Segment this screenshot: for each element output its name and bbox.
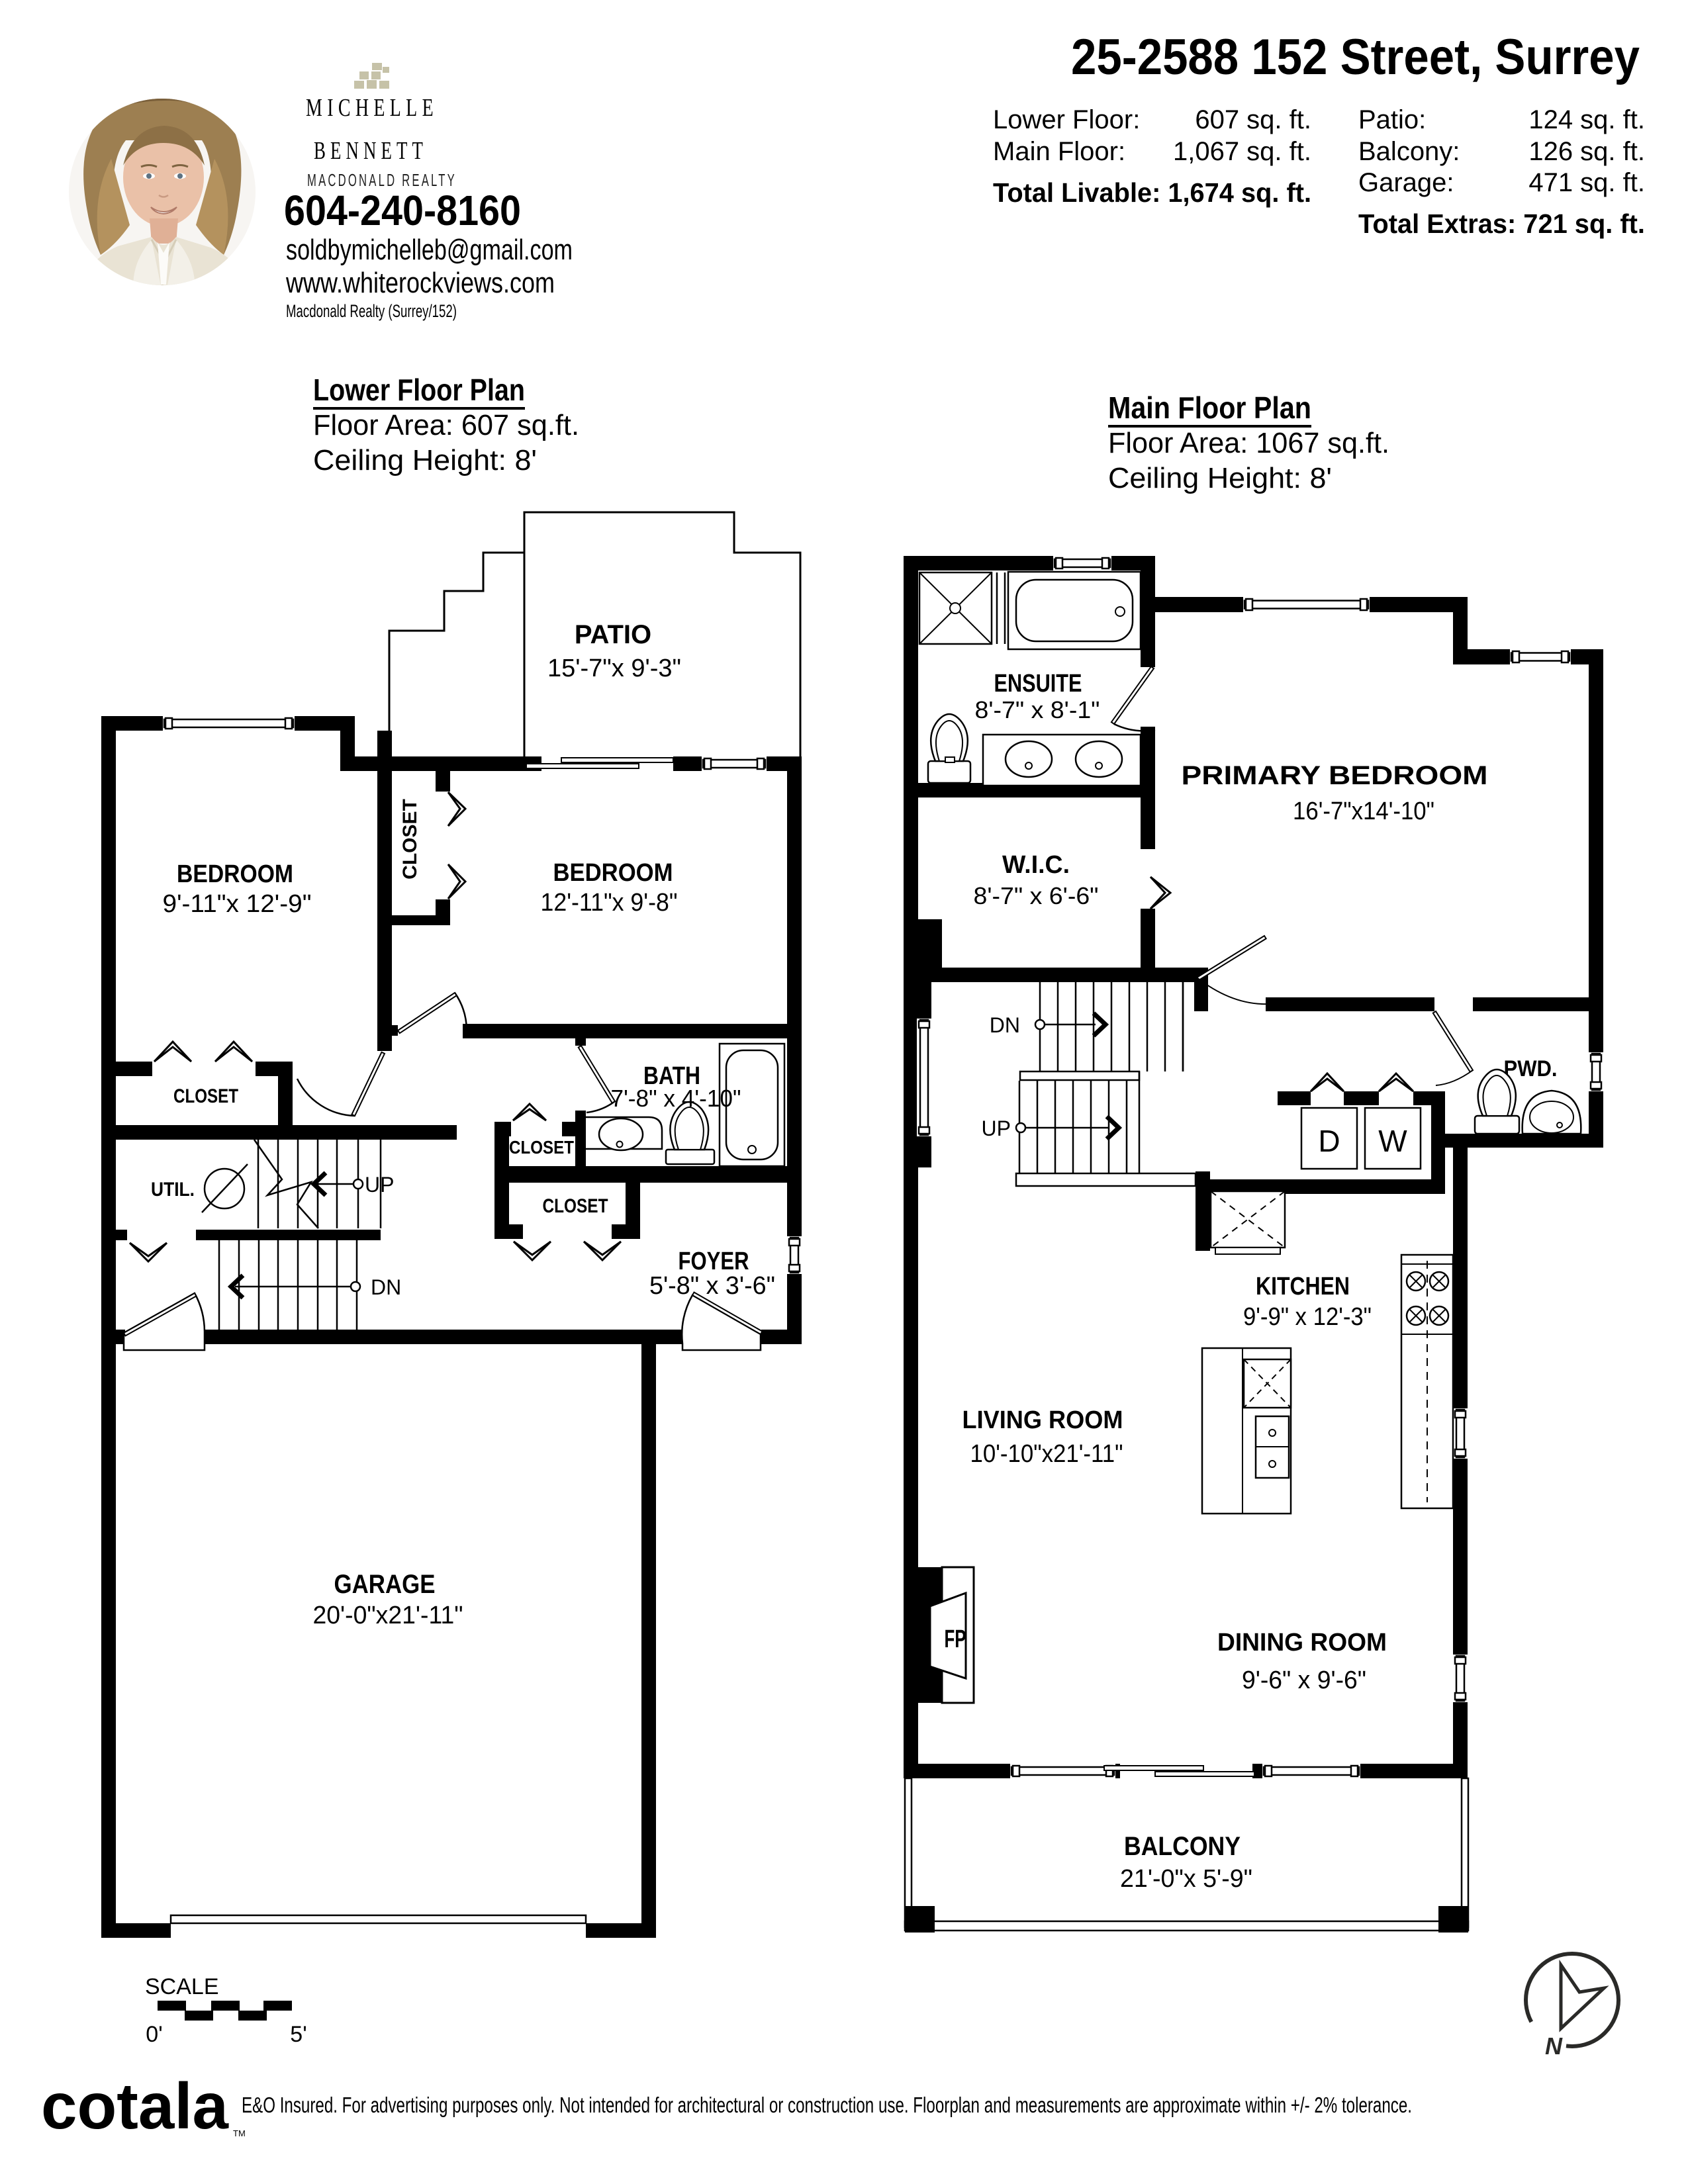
svg-text:www.whiterockviews.com: www.whiterockviews.com [285,267,555,299]
svg-text:CLOSET: CLOSET [509,1137,574,1158]
svg-text:BEDROOM: BEDROOM [177,860,293,888]
svg-text:PWD.: PWD. [1504,1056,1558,1081]
svg-text:Lower Floor:: Lower Floor: [993,105,1140,134]
svg-text:PRIMARY BEDROOM: PRIMARY BEDROOM [1182,761,1488,790]
svg-text:LIVING ROOM: LIVING ROOM [962,1406,1123,1434]
svg-text:Garage:: Garage: [1358,168,1454,197]
svg-text:9'-11"x 12'-9": 9'-11"x 12'-9" [163,890,312,918]
svg-text:25-2588 152 Street, Surrey: 25-2588 152 Street, Surrey [1071,29,1640,85]
svg-text:UP: UP [982,1116,1011,1140]
svg-text:BEDROOM: BEDROOM [553,859,673,887]
svg-text:124 sq. ft.: 124 sq. ft. [1528,105,1645,134]
svg-text:KITCHEN: KITCHEN [1256,1273,1350,1300]
svg-text:UTIL.: UTIL. [151,1179,195,1201]
svg-text:Floor Area: 1067 sq.ft.: Floor Area: 1067 sq.ft. [1108,427,1389,459]
svg-text:W.I.C.: W.I.C. [1002,851,1070,879]
svg-text:FP: FP [945,1625,966,1653]
svg-text:Patio:: Patio: [1358,105,1426,134]
svg-text:CLOSET: CLOSET [543,1195,608,1217]
svg-text:DN: DN [371,1275,401,1299]
svg-text:16'-7"x14'-10": 16'-7"x14'-10" [1293,797,1434,825]
svg-text:9'-9" x 12'-3": 9'-9" x 12'-3" [1243,1303,1372,1331]
svg-text:126 sq. ft.: 126 sq. ft. [1528,137,1645,166]
svg-text:Total Livable: 1,674 sq. ft.: Total Livable: 1,674 sq. ft. [993,177,1311,208]
svg-text:471 sq. ft.: 471 sq. ft. [1528,168,1645,197]
svg-text:Lower Floor Plan: Lower Floor Plan [313,373,525,407]
svg-text:604-240-8160: 604-240-8160 [284,187,521,234]
svg-text:8'-7" x 8'-1": 8'-7" x 8'-1" [975,696,1100,723]
svg-text:15'-7"x 9'-3": 15'-7"x 9'-3" [547,655,681,682]
svg-text:PATIO: PATIO [575,620,651,649]
svg-text:D: D [1318,1124,1340,1158]
svg-text:N: N [1545,2032,1563,2060]
svg-text:10'-10"x21'-11": 10'-10"x21'-11" [970,1440,1123,1468]
svg-text:20'-0"x21'-11": 20'-0"x21'-11" [313,1602,463,1629]
svg-text:Macdonald Realty (Surrey/152): Macdonald Realty (Surrey/152) [286,301,457,321]
svg-text:BENNETT: BENNETT [314,137,428,165]
svg-text:W: W [1378,1124,1407,1158]
svg-text:Main Floor Plan: Main Floor Plan [1108,390,1311,425]
svg-text:Balcony:: Balcony: [1358,137,1460,166]
svg-text:12'-11"x 9'-8": 12'-11"x 9'-8" [541,889,678,917]
svg-text:1,067 sq. ft.: 1,067 sq. ft. [1173,137,1311,166]
svg-text:UP: UP [365,1173,394,1197]
svg-text:Main Floor:: Main Floor: [993,137,1125,166]
svg-text:607 sq. ft.: 607 sq. ft. [1195,105,1311,134]
svg-text:MICHELLE: MICHELLE [306,94,438,122]
svg-text:FOYER: FOYER [679,1248,749,1275]
svg-text:5': 5' [290,2022,306,2047]
svg-text:CLOSET: CLOSET [173,1085,238,1107]
svg-text:Ceiling Height: 8': Ceiling Height: 8' [1108,462,1332,494]
svg-text:8'-7" x 6'-6": 8'-7" x 6'-6" [974,882,1099,909]
svg-text:soldbymichelleb@gmail.com: soldbymichelleb@gmail.com [286,234,573,266]
svg-text:Total Extras: 721 sq. ft.: Total Extras: 721 sq. ft. [1358,208,1645,239]
svg-text:BALCONY: BALCONY [1124,1832,1241,1861]
svg-text:cotala: cotala [41,2070,229,2142]
svg-text:TM: TM [233,2128,246,2138]
svg-text:0': 0' [146,2022,162,2047]
svg-text:7'-8" x 4'-10": 7'-8" x 4'-10" [611,1085,741,1112]
svg-text:GARAGE: GARAGE [334,1570,436,1599]
svg-text:5'-8" x 3'-6": 5'-8" x 3'-6" [649,1272,775,1300]
svg-text:CLOSET: CLOSET [399,799,421,880]
svg-text:Ceiling Height: 8': Ceiling Height: 8' [313,444,537,477]
svg-text:ENSUITE: ENSUITE [994,670,1082,698]
svg-text:Floor Area: 607 sq.ft.: Floor Area: 607 sq.ft. [313,409,579,441]
svg-text:DINING ROOM: DINING ROOM [1217,1629,1387,1657]
svg-text:SCALE: SCALE [145,1974,219,1999]
svg-text:DN: DN [990,1013,1020,1037]
svg-text:E&O Insured. For advertising p: E&O Insured. For advertising purposes on… [242,2093,1412,2117]
svg-text:9'-6" x 9'-6": 9'-6" x 9'-6" [1242,1666,1366,1694]
svg-text:21'-0"x 5'-9": 21'-0"x 5'-9" [1120,1865,1252,1893]
